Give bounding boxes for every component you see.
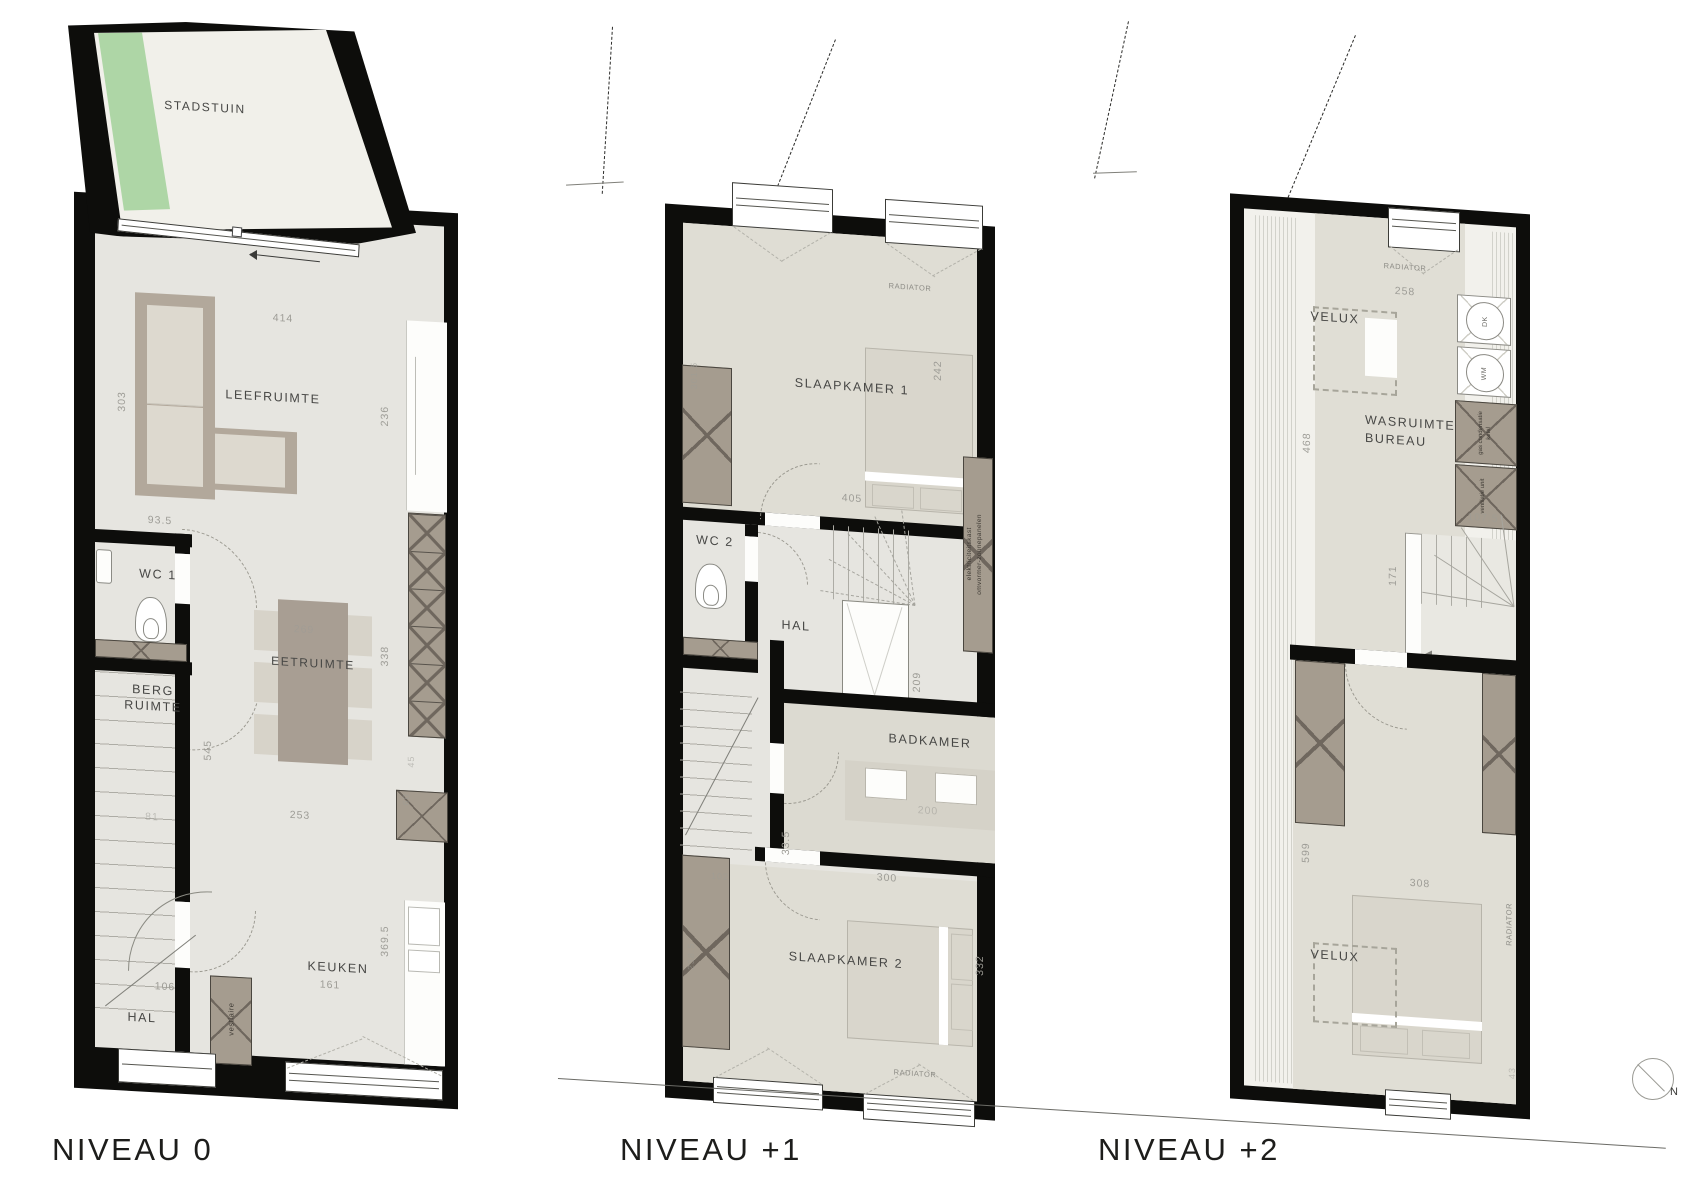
chair [254, 714, 278, 755]
sofa-cushions [147, 405, 203, 487]
dryer-label: DK [1481, 316, 1488, 327]
dim-43: 43 [1507, 1058, 1517, 1089]
sideboard-line [415, 357, 416, 475]
sink [865, 767, 907, 800]
bed-fold [939, 927, 948, 1046]
kitchen-tall-cabinets [408, 512, 446, 738]
dim-238-5: 238.5 [686, 931, 696, 982]
property-boundary-line [1288, 35, 1356, 198]
property-boundary-line [1094, 21, 1129, 178]
floor-plan-niveau-2: RADIATOR 258 VELUX DK WM WASRUIMTE/ BURE… [1225, 188, 1565, 1172]
dim-303: 303 [116, 381, 128, 422]
floor-plan-niveau-1: RADIATOR 301.5 SLAAPKAMER 1 242 405 WC 2… [615, 192, 1015, 1180]
neighbor-wall-line [566, 182, 624, 186]
bed-pillow [1360, 1025, 1408, 1054]
toilet-bowl [703, 584, 719, 606]
closet-label-vestiaire: vestiaire [227, 989, 236, 1050]
washing-machine-label: WM [1481, 366, 1488, 380]
plan-title-niveau-1: NIVEAU +1 [620, 1132, 802, 1168]
window [1385, 1089, 1451, 1120]
bed-pillow [920, 487, 962, 512]
kitchen-sink [408, 906, 440, 946]
electrical-cabinet-label: elektriciteitskast omvormer-zonnepanelen [965, 458, 991, 650]
sofa-chaise-cushion [215, 434, 285, 488]
chair [348, 719, 372, 760]
bed-pillow [951, 983, 973, 1031]
dim-545: 545 [202, 730, 214, 771]
window [732, 182, 833, 233]
property-boundary-line [602, 27, 613, 194]
door-opening [745, 536, 758, 582]
door-opening [770, 743, 784, 794]
window [1388, 207, 1460, 252]
kitchen-appliance [408, 949, 440, 973]
toilet-bowl [143, 618, 159, 640]
partition-wall [175, 967, 190, 1052]
dim-599: 599 [1300, 832, 1312, 873]
dim-33-5: 33.5 [780, 823, 792, 864]
partition-wall [175, 663, 190, 902]
electrical-label-line2: omvormer-zonnepanelen [975, 459, 985, 650]
wardrobe-closet [1482, 673, 1516, 835]
dim-81: 81 [132, 810, 172, 824]
front-door [118, 1048, 216, 1087]
dim-369-5: 369.5 [379, 916, 391, 967]
radiator-label: RADIATOR [1505, 894, 1514, 955]
electrical-label-line1: elektriciteitskast [965, 458, 975, 649]
plan-title-niveau-2: NIVEAU +2 [1098, 1132, 1280, 1168]
dim-209: 209 [911, 662, 923, 703]
sliding-door-handle [232, 226, 243, 237]
dim-45: 45 [406, 746, 416, 777]
dim-301-5: 301.5 [689, 350, 699, 401]
partition-wall [745, 524, 758, 537]
dim-338: 338 [379, 636, 391, 677]
dim-60: 60 [401, 784, 411, 815]
chair [254, 662, 278, 703]
wardrobe-closet [1295, 660, 1345, 826]
window [885, 199, 983, 250]
plan-title-niveau-0: NIVEAU 0 [52, 1132, 213, 1168]
chair [348, 615, 372, 656]
sink [935, 772, 977, 805]
dim-468: 468 [1301, 422, 1313, 463]
neighbor-wall-line [1093, 171, 1137, 174]
arrow-head-icon [244, 249, 257, 260]
bed-pillow [1422, 1030, 1470, 1059]
dim-242: 242 [932, 350, 944, 391]
staircase [680, 692, 752, 852]
dim-236: 236 [379, 396, 391, 437]
floor-plan-niveau-0: STADSTUIN 414 LEEFRUIMTE 303 236 93.5 WC… [60, 15, 470, 1168]
north-label: N [1670, 1086, 1678, 1098]
dim-332: 332 [974, 945, 986, 986]
dim-171: 171 [1387, 555, 1399, 596]
sofa-cushions [147, 305, 203, 407]
washbasin [96, 549, 112, 584]
bed-pillow [951, 933, 973, 981]
sideboard [406, 320, 447, 512]
